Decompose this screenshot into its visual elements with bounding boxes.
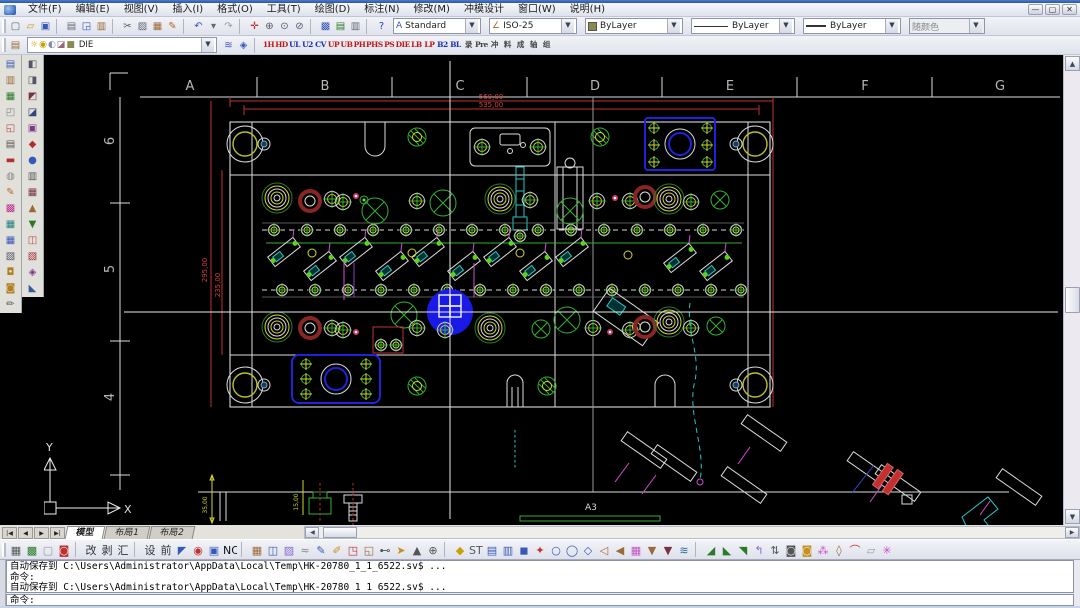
bt-material-icon[interactable]: ▩ <box>24 542 40 558</box>
die-tool-u2[interactable]: U2 <box>301 38 314 52</box>
toolbar-separator <box>254 38 260 53</box>
die-tool-ps[interactable]: PS <box>383 38 396 52</box>
vertical-scroll-thumb[interactable] <box>1065 287 1080 313</box>
standard-toolbar-icons: ▢▱▣▤◲▥✂▨▦✎↶▾↷✛⊕⊙⊘▩▤▥? <box>8 19 389 34</box>
sheetset-icon[interactable]: ▤ <box>333 19 348 34</box>
menu-item-5[interactable]: 工具(T) <box>260 3 308 17</box>
die-tool-ul[interactable]: UL <box>288 38 301 52</box>
dt-punch-icon[interactable]: ◨ <box>25 73 40 88</box>
bt-diam-icon[interactable]: ◇ <box>580 542 596 558</box>
menu-items: 文件(F)编辑(E)视图(V)插入(I)格式(O)工具(T)绘图(D)标注(N)… <box>21 3 612 17</box>
menu-item-0[interactable]: 文件(F) <box>21 3 69 17</box>
linetype-combo[interactable]: ByLayer ▼ <box>691 18 795 34</box>
grid-numbers: 654 <box>103 137 118 401</box>
toolbar-separator <box>239 19 245 34</box>
layout-tab-row: |◀◀▶▶| 模型布局1布局2 ◀ ▶ <box>0 525 1080 539</box>
lt-grid-icon[interactable]: ▦ <box>3 233 18 248</box>
bt-corner-icon[interactable]: ◤ <box>174 542 190 558</box>
toolbar-separator <box>56 19 62 34</box>
svg-text:X: X <box>124 503 132 516</box>
layer-plot-icon[interactable]: ◪ <box>57 40 66 50</box>
bt-hand-icon[interactable]: ➤ <box>393 542 409 558</box>
color-value: ByLayer <box>600 21 637 31</box>
bt-swap-icon[interactable]: ⇅ <box>767 542 783 558</box>
dimension-lines: 560,00 535,00 295,00 235,00 <box>201 93 773 407</box>
grid-label-F: F <box>861 79 868 94</box>
bottom-group-a: ▦▩▢◙改剥汇设前◤◉▣NC <box>8 542 238 558</box>
drawing-canvas[interactable]: ABCDEFG 654 560,00 535,00 295,00 235,00 <box>44 55 1063 525</box>
current-layer-name: DIE <box>79 40 93 50</box>
dt-plate-icon[interactable]: ◧ <box>25 57 40 72</box>
zoom-realtime-icon[interactable]: ⊕ <box>262 19 277 34</box>
tab-first-button[interactable]: |◀ <box>2 527 17 539</box>
grid-label-B: B <box>321 79 330 94</box>
bt-she[interactable]: 设 <box>142 542 158 558</box>
svg-text:295,00: 295,00 <box>201 258 209 283</box>
lt-brush-icon[interactable]: ✎ <box>3 185 18 200</box>
die-tool-bl[interactable]: BL <box>449 38 462 52</box>
command-history[interactable]: 自动保存到 C:\Users\Administrator\AppData\Loc… <box>6 560 1074 593</box>
scroll-down-arrow[interactable]: ▼ <box>1065 509 1080 524</box>
lt-unlock-icon[interactable]: ◙ <box>3 281 18 296</box>
cad-drawing: ABCDEFG 654 560,00 535,00 295,00 235,00 <box>44 55 1063 525</box>
lt-copy-icon[interactable]: ◰ <box>3 105 18 120</box>
dt-insert-icon[interactable]: ◩ <box>25 89 40 104</box>
lt-sheets-icon[interactable]: ▧ <box>3 249 18 264</box>
bolt-row-bottom <box>275 283 748 297</box>
bt-filter2-icon[interactable]: ▼ <box>660 542 676 558</box>
tab-last-button[interactable]: ▶| <box>50 527 65 539</box>
menu-item-1[interactable]: 编辑(E) <box>69 3 117 17</box>
lt-book-icon[interactable]: ▦ <box>3 89 18 104</box>
lt-list-icon[interactable]: ▤ <box>3 137 18 152</box>
toolbar-separator <box>366 19 372 34</box>
toolbar-separator <box>183 19 189 34</box>
die-tool-zhou[interactable]: 轴 <box>527 38 540 52</box>
menu-item-6[interactable]: 绘图(D) <box>308 3 358 17</box>
bt-view-icon[interactable]: ◫ <box>265 542 281 558</box>
help-icon[interactable]: ? <box>374 19 389 34</box>
die-tool-cv[interactable]: CV <box>314 38 327 52</box>
menu-item-8[interactable]: 修改(M) <box>407 3 457 17</box>
bt-slab-icon[interactable]: ▱ <box>863 542 879 558</box>
lineweight-combo[interactable]: ByLayer ▼ <box>803 18 901 34</box>
lineweight-value: ByLayer <box>830 21 867 31</box>
dt-guide-icon[interactable]: ▥ <box>25 169 40 184</box>
bt-blank-icon[interactable]: ▢ <box>40 542 56 558</box>
upper-components <box>262 183 729 224</box>
app-icon[interactable] <box>4 5 16 15</box>
toolbar-separator <box>134 542 140 557</box>
blue-subdie-bottom-left <box>292 355 380 403</box>
redo-icon[interactable]: ↷ <box>221 19 236 34</box>
die-tool-lb[interactable]: LB <box>410 38 423 52</box>
command-history-line-0: 自动保存到 C:\Users\Administrator\AppData\Loc… <box>10 562 1070 573</box>
make-object-layer-icon[interactable]: ≋ <box>221 38 236 53</box>
die-tool-ph[interactable]: PH <box>353 38 366 52</box>
bt-gai[interactable]: 改 <box>83 542 99 558</box>
bt-arc-icon[interactable]: ⌒ <box>847 542 863 558</box>
left-toolbar-column-1: ▤▥▦◰◱▤▬◍✎▩▦▦▧◘◙✏ <box>0 55 22 313</box>
bt-solid-icon[interactable]: ◼ <box>516 542 532 558</box>
tab-nav-buttons: |◀◀▶▶| <box>2 527 66 539</box>
bottom-group-c: ◆STl▤▥◼✦○◯◇◁◀▦▼▼≋ <box>452 542 692 558</box>
bottom-group-b: ▦◫▨≈✎✐◳◱⊷➤▲⊕ <box>249 542 441 558</box>
lt-properties-icon[interactable]: ▤ <box>3 57 18 72</box>
linetype-sample <box>694 26 728 27</box>
zoom-previous-icon[interactable]: ⊘ <box>292 19 307 34</box>
layer-manager-icon[interactable]: ▤ <box>8 38 23 53</box>
lt-ois-icon[interactable]: ◍ <box>3 169 18 184</box>
text-style-dropdown-arrow[interactable]: ▼ <box>465 19 478 33</box>
markup-icon[interactable]: ▥ <box>348 19 363 34</box>
grid-label-E: E <box>726 79 734 94</box>
bt-ramp3-icon[interactable]: ◥ <box>735 542 751 558</box>
horizontal-scrollbar[interactable]: ◀ ▶ <box>304 526 1080 539</box>
dim-style-combo[interactable]: ∠ ISO-25 ▼ <box>489 18 577 34</box>
blue-subdie-top-right <box>645 118 715 170</box>
dt-rail-icon[interactable]: ▲ <box>25 201 40 216</box>
dt-edge-icon[interactable]: ◣ <box>25 281 40 296</box>
wire-end <box>697 479 703 485</box>
tab-model[interactable]: 模型 <box>65 526 106 539</box>
section-green-part <box>309 483 331 521</box>
die-tool-phs[interactable]: PHS <box>366 38 383 52</box>
dt-block-icon[interactable]: ▦ <box>25 185 40 200</box>
plot-icon[interactable]: ▤ <box>64 19 79 34</box>
bottom-group-d: ◢◣◥↰⇅◙◙⁂◊⌒▱✳ <box>703 542 895 558</box>
layer-state-glyphs: ☼◉◐◪■ <box>30 40 75 50</box>
bt-ramp1-icon[interactable]: ◢ <box>703 542 719 558</box>
restore-button[interactable]: ▢ <box>1045 4 1060 15</box>
bt-pen2-icon[interactable]: ✐ <box>329 542 345 558</box>
menu-item-4[interactable]: 格式(O) <box>210 3 260 17</box>
bt-cabinet-icon[interactable]: ▦ <box>249 542 265 558</box>
main-area: ▤▥▦◰◱▤▬◍✎▩▦▦▧◘◙✏ ◧◨◩◪▣◆●▥▦▲▼◫▧◈◣ <box>0 55 1080 525</box>
dt-strip-icon[interactable]: ◪ <box>25 105 40 120</box>
bt-page-icon[interactable]: ◱ <box>361 542 377 558</box>
layer-dropdown-arrow[interactable]: ▼ <box>201 38 214 52</box>
layer-lock-icon[interactable]: ◐ <box>48 40 56 50</box>
bt-bluebox-icon[interactable]: ▣ <box>206 542 222 558</box>
lt-lock-icon[interactable]: ◘ <box>3 265 18 280</box>
toolbar-grip[interactable] <box>2 19 6 33</box>
die-tool-cheng[interactable]: 成 <box>514 38 527 52</box>
die-tool-ub[interactable]: UB <box>340 38 353 52</box>
bt-eq-icon[interactable]: ≈ <box>297 542 313 558</box>
svg-text:235,00: 235,00 <box>214 273 222 298</box>
grid-label-6: 6 <box>103 137 118 145</box>
window-controls: —▢✕ <box>1028 4 1080 15</box>
minimize-button[interactable]: — <box>1028 4 1043 15</box>
scroll-up-arrow[interactable]: ▲ <box>1065 56 1080 71</box>
bt-b6-icon[interactable]: ⊷ <box>377 542 393 558</box>
bt-oring2-icon[interactable]: ◙ <box>799 542 815 558</box>
tab-prev-button[interactable]: ◀ <box>18 527 33 539</box>
grid-label-A: A <box>186 79 195 94</box>
bt-target-icon[interactable]: ◙ <box>56 542 72 558</box>
bt-oring-icon[interactable]: ◙ <box>783 542 799 558</box>
lt-pen-icon[interactable]: ✏ <box>3 297 18 312</box>
grid-label-5: 5 <box>103 265 118 273</box>
bt-spk1-icon[interactable]: ◁ <box>596 542 612 558</box>
bt-3d-icon[interactable]: ▲ <box>409 542 425 558</box>
grid-label-G: G <box>995 79 1005 94</box>
guide-pillars <box>227 126 773 403</box>
die-tool-die[interactable]: DIE <box>396 38 410 52</box>
svg-text:15,00: 15,00 <box>293 493 300 510</box>
menu-bar: 文件(F)编辑(E)视图(V)插入(I)格式(O)工具(T)绘图(D)标注(N)… <box>0 3 1080 17</box>
layers-toolbar: ▤ ☼◉◐◪■ DIE ▼ ≋◈ 1HHDULU2CVUPUBPHPHSPSDI… <box>0 36 1080 55</box>
bt-stl[interactable]: STl <box>468 542 484 558</box>
bt-reddot-icon[interactable]: ◉ <box>190 542 206 558</box>
die-tool-zu[interactable]: 组 <box>540 38 553 52</box>
layer-combo[interactable]: ☼◉◐◪■ DIE ▼ <box>27 37 217 53</box>
command-prompt: 命令: <box>10 595 35 606</box>
die-design-toolbar: 1HHDULU2CVUPUBPHPHSPSDIELBLPB2BL录Pre冲料成轴… <box>262 38 553 52</box>
tab-next-button[interactable]: ▶ <box>34 527 49 539</box>
lt-palette-icon[interactable]: ▩ <box>3 201 18 216</box>
new-icon[interactable]: ▢ <box>8 19 23 34</box>
loose-punches <box>615 415 1042 525</box>
lt-chip-icon[interactable]: ▦ <box>3 217 18 232</box>
dt-cloud-icon[interactable]: ● <box>25 153 40 168</box>
bt-gem-icon[interactable]: ◊ <box>831 542 847 558</box>
bt-spk2-icon[interactable]: ◀ <box>612 542 628 558</box>
close-button[interactable]: ✕ <box>1062 4 1077 15</box>
layer-color-icon[interactable]: ■ <box>66 40 75 50</box>
bt-hui[interactable]: 汇 <box>115 542 131 558</box>
bottom-separator-1 <box>241 542 247 557</box>
menu-item-10[interactable]: 窗口(W) <box>511 3 563 17</box>
dt-wire-icon[interactable]: ◈ <box>25 265 40 280</box>
toolpalette-icon[interactable]: ▩ <box>318 19 333 34</box>
lt-stamp-icon[interactable]: ◱ <box>3 121 18 136</box>
open-icon[interactable]: ▱ <box>23 19 38 34</box>
bt-ramp2-icon[interactable]: ◣ <box>719 542 735 558</box>
sheet-size-label: A3 <box>585 503 597 513</box>
bt-burst-icon[interactable]: ⁂ <box>815 542 831 558</box>
menu-item-11[interactable]: 说明(H) <box>563 3 612 17</box>
command-history-line-2: 自动保存到 C:\Users\Administrator\AppData\Loc… <box>10 583 1070 593</box>
strip-stations <box>264 229 737 281</box>
section-screw <box>344 483 362 525</box>
menu-item-7[interactable]: 标注(N) <box>357 3 406 17</box>
dt-spring-icon[interactable]: ◆ <box>25 137 40 152</box>
bt-circ2-icon[interactable]: ◯ <box>564 542 580 558</box>
toolbar-separator <box>310 19 316 34</box>
dt-pilot-icon[interactable]: ▣ <box>25 121 40 136</box>
preview-icon[interactable]: ◲ <box>79 19 94 34</box>
vertical-scrollbar[interactable]: ▲ ▼ <box>1063 55 1080 525</box>
bt-grid2-icon[interactable]: ▦ <box>628 542 644 558</box>
pan-icon[interactable]: ✛ <box>247 19 262 34</box>
die-tool-liao[interactable]: 料 <box>501 38 514 52</box>
bt-render-icon[interactable]: ▦ <box>8 542 24 558</box>
svg-text:560,00: 560,00 <box>479 93 504 101</box>
menu-item-2[interactable]: 视图(V) <box>117 3 166 17</box>
zoom-window-icon[interactable]: ⊙ <box>277 19 292 34</box>
bt-pen1-icon[interactable]: ✎ <box>313 542 329 558</box>
standard-toolbar: ▢▱▣▤◲▥✂▨▦✎↶▾↷✛⊕⊙⊘▩▤▥? A Standard ▼ ∠ ISO… <box>0 17 1080 36</box>
die-tool-hd[interactable]: HD <box>275 38 288 52</box>
bt-aster-icon[interactable]: ✳ <box>879 542 895 558</box>
toolbar-separator <box>112 19 118 34</box>
lineweight-sample <box>806 25 826 27</box>
layer-right-icons: ≋◈ <box>221 38 251 53</box>
tab-layout1[interactable]: 布局1 <box>104 526 150 539</box>
dim-style-value: ISO-25 <box>503 21 533 31</box>
dim-style-dropdown-arrow[interactable]: ▼ <box>561 19 574 33</box>
die-tool-b2[interactable]: B2 <box>436 38 449 52</box>
die-tool-lu[interactable]: 录 <box>462 38 475 52</box>
dt-lift-icon[interactable]: ▼ <box>25 217 40 232</box>
toolbar-separator <box>75 542 81 557</box>
scroll-right-arrow[interactable]: ▶ <box>1065 527 1079 538</box>
text-style-icon: A <box>396 21 402 31</box>
lt-layers-icon[interactable]: ▥ <box>3 73 18 88</box>
scroll-left-arrow[interactable]: ◀ <box>305 527 319 538</box>
menu-item-9[interactable]: 冲模设计 <box>457 3 511 17</box>
menu-item-3[interactable]: 插入(I) <box>165 3 210 17</box>
svg-text:535,00: 535,00 <box>479 101 504 109</box>
bt-bend-icon[interactable]: ↰ <box>751 542 767 558</box>
bottom-toolbar: ▦▩▢◙改剥汇设前◤◉▣NC ▦◫▨≈✎✐◳◱⊷➤▲⊕ ◆STl▤▥◼✦○◯◇◁… <box>0 539 1080 560</box>
bt-filter1-icon[interactable]: ▼ <box>644 542 660 558</box>
svg-text:35,00: 35,00 <box>202 496 209 513</box>
plot-style-value: 随颜色 <box>912 20 939 33</box>
plot-style-combo: 随颜色 ▼ <box>909 18 985 34</box>
toolbar-grip-2[interactable] <box>2 38 6 52</box>
undo-drop-icon[interactable]: ▾ <box>206 19 221 34</box>
grid-letters: ABCDEFG <box>186 79 1005 94</box>
bt-bo[interactable]: 剥 <box>99 542 115 558</box>
cad-application-window: 文件(F)编辑(E)视图(V)插入(I)格式(O)工具(T)绘图(D)标注(N)… <box>0 0 1080 608</box>
grid-label-C: C <box>455 79 464 94</box>
red-pocket <box>373 327 403 353</box>
lt-band-icon[interactable]: ▬ <box>3 153 18 168</box>
bottom-separator-2 <box>444 542 450 557</box>
color-combo[interactable]: ByLayer ▼ <box>585 18 683 34</box>
dt-dowel-icon[interactable]: ▧ <box>25 249 40 264</box>
undo-icon[interactable]: ↶ <box>191 19 206 34</box>
layout-tabs: 模型布局1布局2 <box>66 526 194 539</box>
linetype-value: ByLayer <box>732 21 769 31</box>
bt-land-icon[interactable]: ≋ <box>676 542 692 558</box>
bt-circ1-icon[interactable]: ○ <box>548 542 564 558</box>
bt-qian[interactable]: 前 <box>158 542 174 558</box>
command-input-line[interactable]: 命令: <box>6 594 1074 606</box>
svg-text:Y: Y <box>45 441 53 454</box>
bolt-row-top <box>267 223 743 237</box>
bt-circleplus-icon[interactable]: ⊕ <box>425 542 441 558</box>
die-tool-up[interactable]: UP <box>327 38 340 52</box>
save-icon[interactable]: ▣ <box>38 19 53 34</box>
bt-print2-icon[interactable]: ▥ <box>500 542 516 558</box>
color-dropdown-arrow[interactable]: ▼ <box>667 19 680 33</box>
lifter-block <box>557 158 583 229</box>
lower-components <box>262 302 725 470</box>
die-tool-1h[interactable]: 1H <box>262 38 275 52</box>
punch-hatch-detail <box>852 463 912 504</box>
dim-style-icon: ∠ <box>492 21 500 31</box>
dt-screw-icon[interactable]: ◫ <box>25 233 40 248</box>
bt-gold-icon[interactable]: ◆ <box>452 542 468 558</box>
grid-label-4: 4 <box>103 393 118 401</box>
plot-style-dropdown-arrow: ▼ <box>969 19 982 33</box>
publish-icon[interactable]: ▥ <box>94 19 109 34</box>
horizontal-scroll-thumb[interactable] <box>323 527 357 538</box>
text-style-combo[interactable]: A Standard ▼ <box>393 18 481 34</box>
ucs-icon: Y X <box>44 441 132 516</box>
layer-on-icon[interactable]: ☼ <box>30 40 38 50</box>
lineweight-dropdown-arrow[interactable]: ▼ <box>885 19 898 33</box>
layer-states-icon[interactable]: ◈ <box>236 38 251 53</box>
bottom-separator-3 <box>695 542 701 557</box>
paste-icon[interactable]: ▦ <box>150 19 165 34</box>
layer-freeze-icon[interactable]: ◉ <box>39 40 47 50</box>
die-tool-lp[interactable]: LP <box>423 38 436 52</box>
text-style-value: Standard <box>405 21 446 31</box>
bt-nc[interactable]: NC <box>222 542 238 558</box>
left-toolbar-column-2: ◧◨◩◪▣◆●▥▦▲▼◫▧◈◣ <box>22 55 44 297</box>
bottom-toolbar-grip[interactable] <box>2 543 6 557</box>
color-swatch <box>588 22 597 31</box>
tab-layout2[interactable]: 布局2 <box>148 526 194 539</box>
bt-table-icon[interactable]: ▤ <box>484 542 500 558</box>
bt-copy2-icon[interactable]: ◳ <box>345 542 361 558</box>
bt-purple-icon[interactable]: ▨ <box>281 542 297 558</box>
die-tool-chong[interactable]: 冲 <box>488 38 501 52</box>
grid-label-D: D <box>590 79 600 94</box>
matchprop-icon[interactable]: ✎ <box>165 19 180 34</box>
cut-icon[interactable]: ✂ <box>120 19 135 34</box>
copy-icon[interactable]: ▨ <box>135 19 150 34</box>
linetype-dropdown-arrow[interactable]: ▼ <box>779 19 792 33</box>
die-tool-pre[interactable]: Pre <box>475 38 488 52</box>
bt-star-icon[interactable]: ✦ <box>532 542 548 558</box>
